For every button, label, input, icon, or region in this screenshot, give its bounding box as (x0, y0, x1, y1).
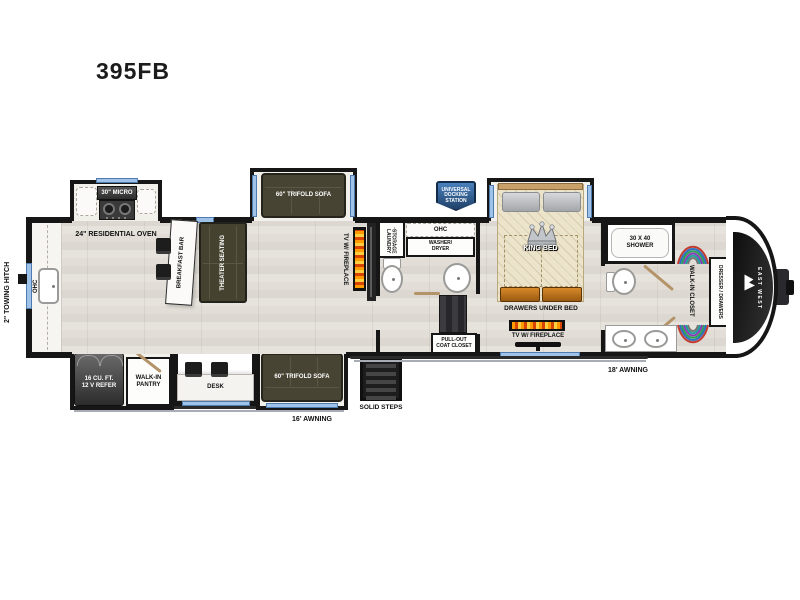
trifold-sofa-bottom: 60" TRIFOLD SOFA (261, 353, 343, 402)
king-bed-label: KING BED (498, 245, 583, 253)
under-bed-drawer-2 (542, 287, 582, 302)
wall (476, 222, 480, 294)
refrigerator: 16 CU. FT. 12 V REFER (74, 353, 124, 406)
bar-stool-1 (156, 238, 171, 254)
kitchen-cabinet-dashed-right (137, 189, 156, 214)
stove-icon (99, 200, 135, 220)
mid-bath-sink (443, 263, 471, 293)
washer-dryer: WASHER/ DRYER (406, 237, 475, 257)
living-fireplace-icon (353, 227, 366, 291)
sofa-top-window-right (350, 175, 355, 217)
shower-label: 30 X 40 SHOWER (627, 236, 654, 250)
microwave: 30" MICRO (97, 186, 137, 200)
bed-window-left (489, 185, 494, 218)
solid-steps-icon (360, 357, 402, 401)
awning-rail-left-2 (74, 410, 344, 412)
desk-label: DESK (207, 384, 224, 391)
breakfast-bar-label: BREAKFAST BAR (176, 237, 186, 289)
docking-station-label: UNIVERSAL DOCKING STATION (442, 188, 471, 205)
mid-toilet (381, 265, 403, 293)
sofa-bottom-label: 60" TRIFOLD SOFA (274, 374, 329, 381)
bedroom-tv-stand (536, 347, 540, 351)
desk: DESK (177, 374, 254, 401)
bath-ohc: OHC (406, 223, 475, 237)
sofa-top-window-left (252, 175, 257, 217)
page-title: 395FB (96, 58, 186, 85)
vanity-counter (605, 325, 677, 352)
king-bed: KING BED (497, 184, 584, 302)
wall (376, 330, 380, 354)
towing-hitch (18, 274, 27, 284)
wall (26, 352, 72, 358)
bedroom-tv-fireplace-label: TV W/ FIREPLACE (503, 333, 573, 340)
sofa-top-label: 60" TRIFOLD SOFA (276, 192, 331, 199)
laundry-closet: LAUNDRY STORAGE (378, 221, 405, 258)
kitchen-slide-window (96, 178, 138, 183)
awning-rail-right-2 (354, 360, 646, 362)
awning-right-label: 18' AWNING (588, 367, 668, 375)
living-tv-icon (367, 223, 376, 301)
kitchen-sink (38, 268, 59, 304)
micro-label: 30" MICRO (101, 190, 132, 197)
bath-ohc-label: OHC (434, 227, 447, 234)
washer-dryer-label: WASHER/ DRYER (429, 241, 452, 253)
refer-label: 16 CU. FT. 12 V REFER (75, 376, 123, 390)
awning-left-label: 16' AWNING (272, 416, 352, 424)
kitchen-cabinet-dashed-left (76, 187, 97, 216)
floorplan-395fb: 395FB 16' AWNING 30" MICRO 60" TRIFOLD S… (0, 0, 800, 600)
towing-hitch-label: 2" TOWING HITCH (4, 252, 12, 332)
trifold-sofa-top: 60" TRIFOLD SOFA (261, 173, 346, 218)
bedroom-fireplace-icon (509, 320, 565, 331)
desk-window (182, 401, 250, 406)
living-tv-fireplace-label: TV W/ FIREPLACE (341, 228, 348, 290)
oven-label: 24" RESIDENTIAL OVEN (60, 231, 172, 239)
bath-door-swing (414, 292, 440, 295)
desk-stool-1 (185, 362, 202, 377)
under-bed-drawer-1 (500, 287, 540, 302)
desk-stool-2 (211, 362, 228, 377)
coat-closet-label: PULL-OUT COAT CLOSET (436, 338, 471, 350)
pantry-label: WALK-IN PANTRY (136, 375, 162, 389)
solid-steps-label: SOLID STEPS (352, 404, 410, 411)
entry-door-landing (439, 295, 467, 333)
shower: 30 X 40 SHOWER (605, 222, 675, 264)
docking-station-badge: UNIVERSAL DOCKING STATION (436, 181, 476, 211)
walk-in-closet-label: WALK-IN CLOSET (687, 252, 694, 330)
theater-label: THEATER SEATING (220, 235, 227, 291)
kingpin (786, 280, 794, 295)
bar-stool-2 (156, 264, 171, 280)
bed-window-right (587, 185, 592, 218)
rear-toilet (612, 268, 636, 295)
awning-rail-right (350, 356, 648, 359)
brand-label: EAST WEST (755, 244, 761, 332)
drawers-under-bed-label: DRAWERS UNDER BED (495, 305, 587, 312)
sofa-bottom-window (266, 403, 338, 408)
theater-seating: THEATER SEATING (199, 222, 247, 303)
kitchen-ohc-label: OHC (33, 274, 40, 298)
coat-closet: PULL-OUT COAT CLOSET (431, 333, 477, 354)
dresser-label: DRESSER / DRAWERS (716, 261, 722, 323)
